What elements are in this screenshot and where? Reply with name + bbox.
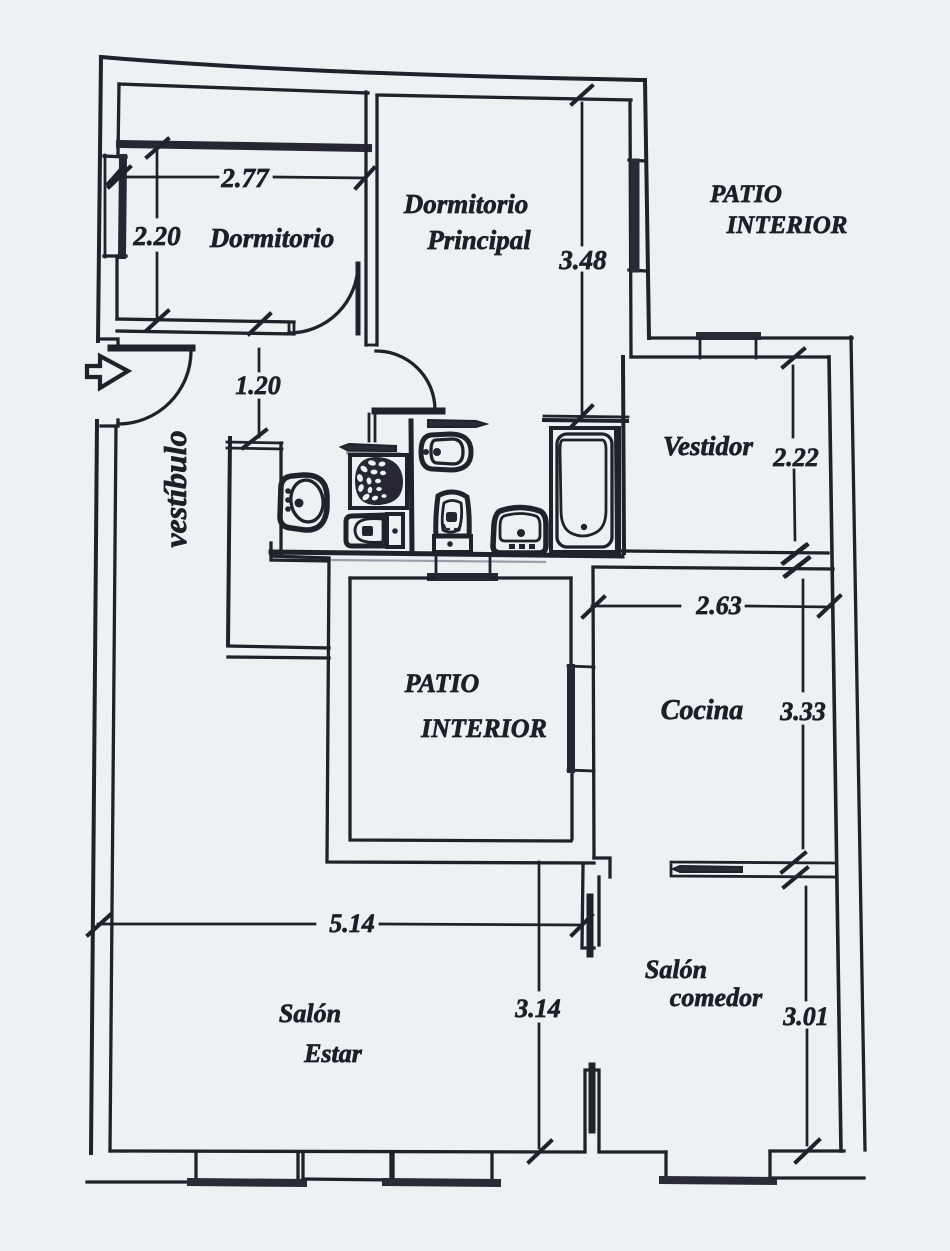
svg-text:2.77: 2.77: [220, 163, 270, 193]
svg-text:2.63: 2.63: [695, 591, 742, 620]
svg-text:3.01: 3.01: [782, 1002, 829, 1031]
svg-text:Principal: Principal: [426, 225, 531, 255]
svg-text:Salón: Salón: [279, 999, 341, 1028]
svg-text:PATIO: PATIO: [404, 669, 480, 698]
svg-text:Dormitorio: Dormitorio: [403, 189, 529, 219]
svg-text:comedor: comedor: [670, 983, 763, 1012]
svg-text:vestíbulo: vestíbulo: [157, 430, 193, 547]
svg-text:Salón: Salón: [645, 955, 707, 984]
svg-text:2.20: 2.20: [132, 221, 181, 251]
svg-text:Dormitorio: Dormitorio: [209, 223, 335, 253]
svg-text:3.14: 3.14: [514, 994, 561, 1023]
svg-text:3.33: 3.33: [779, 697, 826, 726]
svg-text:INTERIOR: INTERIOR: [726, 212, 848, 239]
svg-text:2.22: 2.22: [772, 443, 819, 472]
svg-text:Vestidor: Vestidor: [663, 431, 754, 461]
svg-text:Cocina: Cocina: [661, 695, 743, 726]
svg-text:3.48: 3.48: [558, 245, 607, 275]
svg-text:PATIO: PATIO: [709, 181, 782, 208]
svg-text:5.14: 5.14: [329, 909, 375, 938]
svg-text:Estar: Estar: [303, 1039, 363, 1068]
svg-text:1.20: 1.20: [235, 371, 281, 400]
svg-text:INTERIOR: INTERIOR: [420, 714, 547, 743]
